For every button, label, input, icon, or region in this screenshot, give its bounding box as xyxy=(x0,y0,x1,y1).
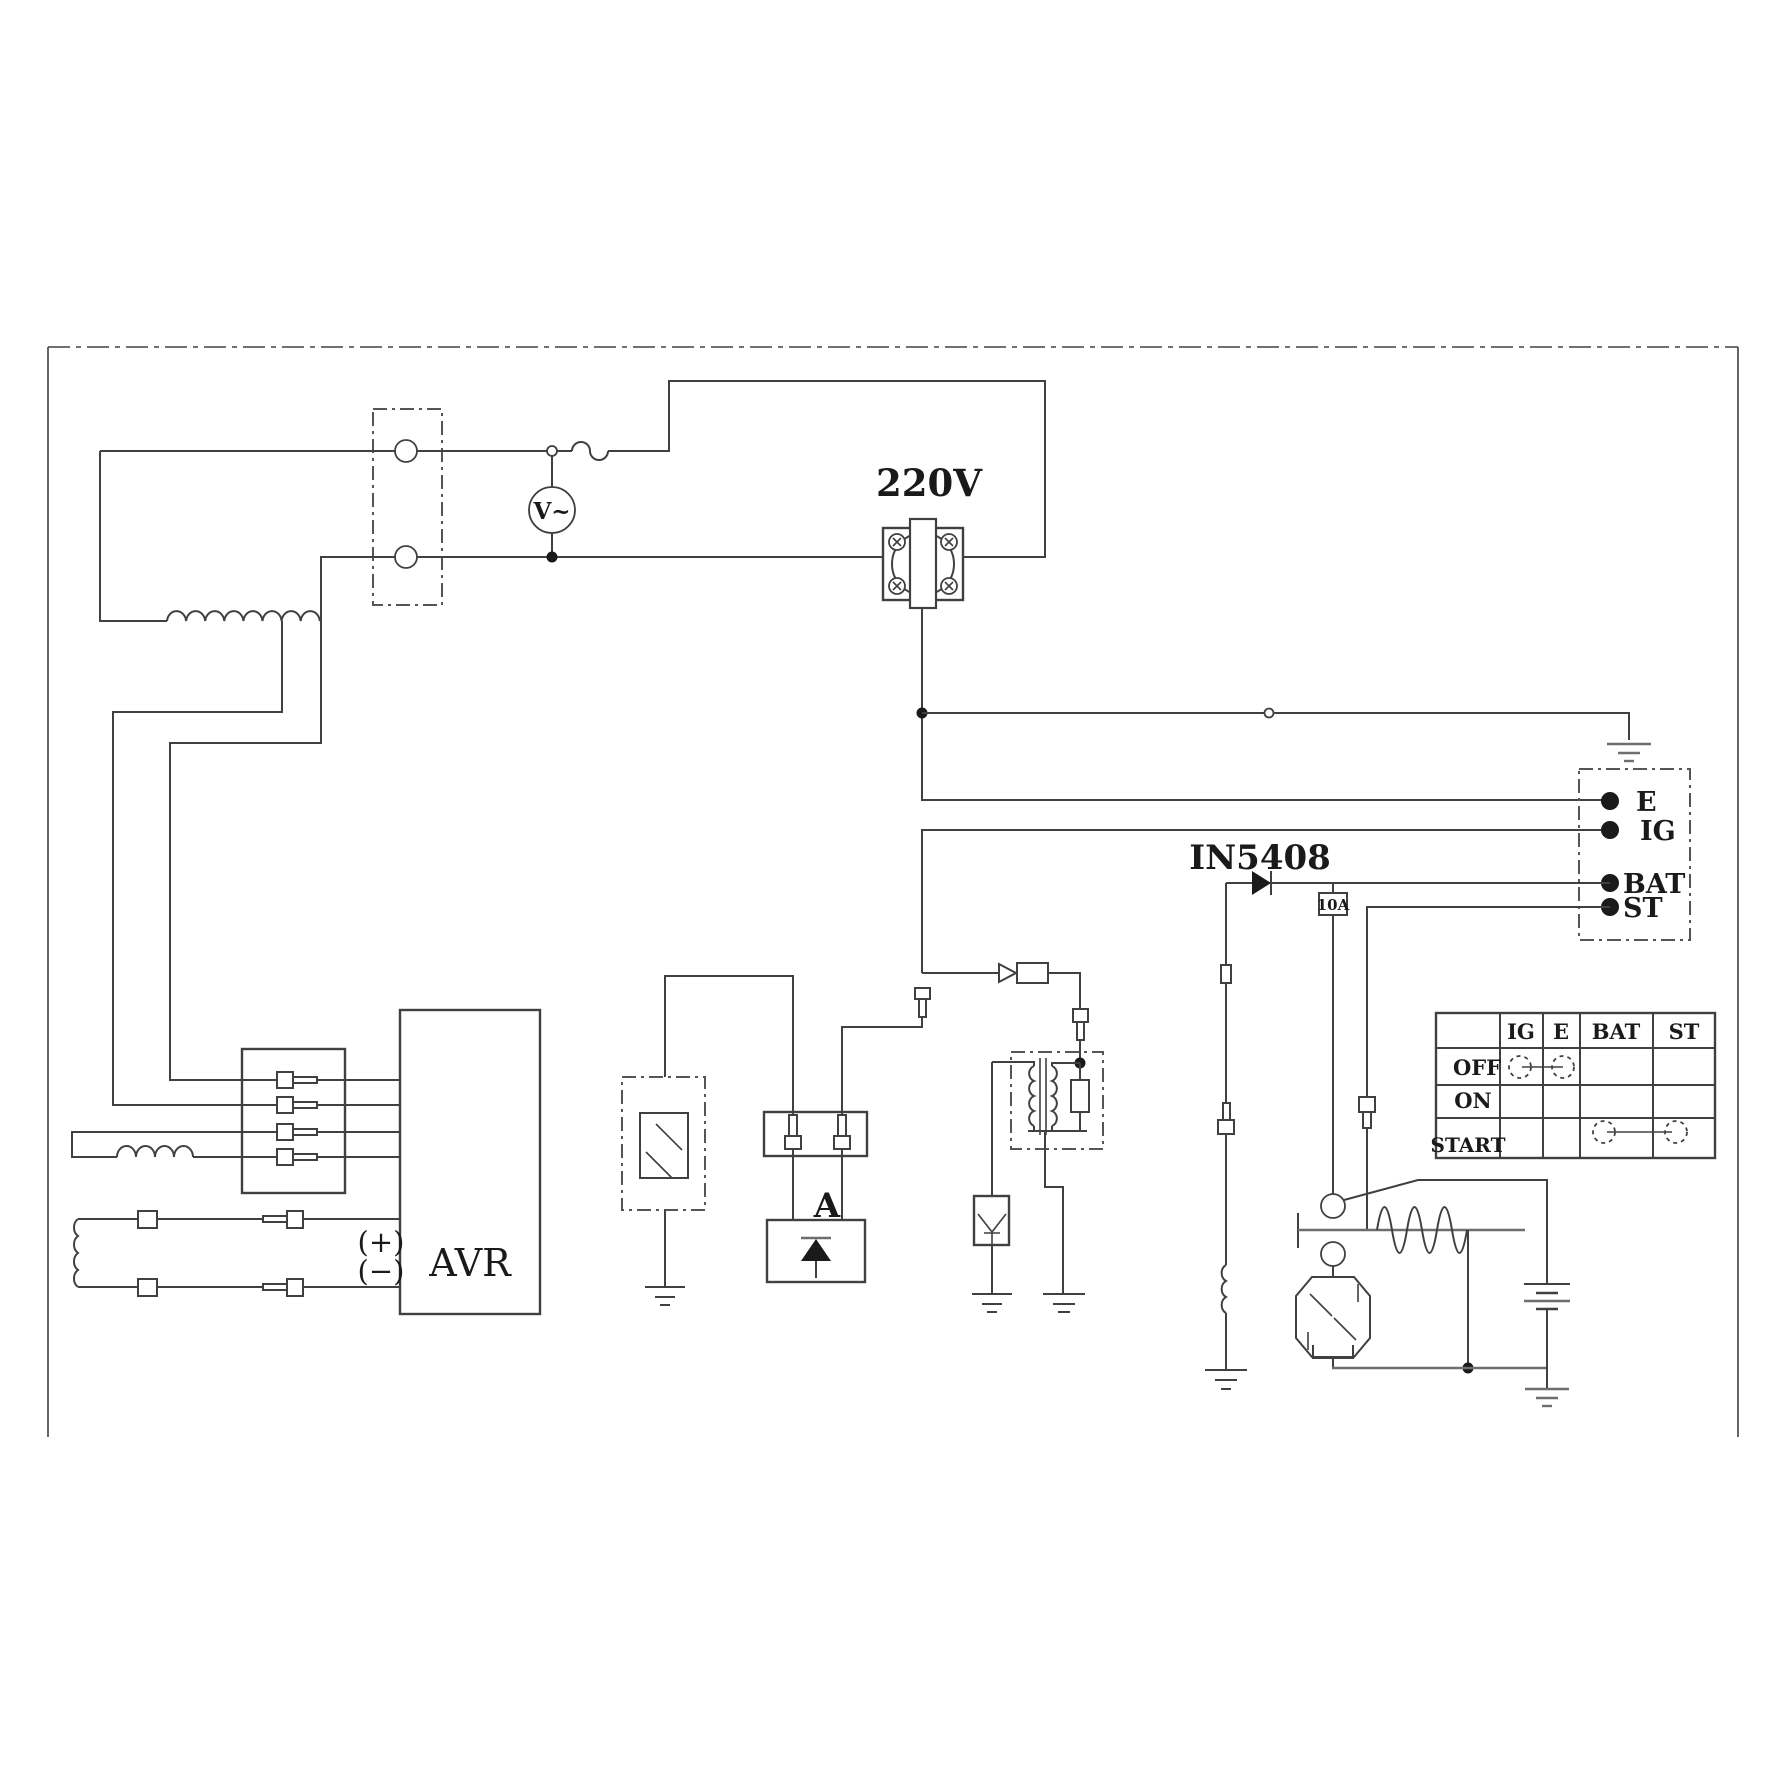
voltmeter: V~ xyxy=(529,455,575,563)
table-header-e: E xyxy=(1553,1019,1569,1044)
outlet-slot xyxy=(910,519,936,608)
terminal-e-label: E xyxy=(1636,787,1657,818)
ignition-switch-connector: E IG BAT ST xyxy=(1579,769,1690,940)
sense-coil xyxy=(117,1146,193,1157)
battery-charge-line: IN5408 10A xyxy=(1189,838,1610,1389)
inline-connector xyxy=(1221,965,1231,983)
field-winding xyxy=(74,1211,400,1296)
avr-label: AVR xyxy=(428,1241,512,1285)
table-contact-start xyxy=(1593,1121,1687,1143)
ground-symbol-spark-plug xyxy=(972,1294,1012,1312)
ground-symbol-charging-coil xyxy=(1205,1370,1247,1389)
avr-unit: AVR (+) (−) xyxy=(358,1010,540,1314)
battery xyxy=(1524,1284,1570,1406)
table-header-ig: IG xyxy=(1507,1019,1535,1044)
generator-terminal-box xyxy=(373,409,442,605)
avr-plug-2 xyxy=(277,1097,400,1113)
voltmeter-label: V~ xyxy=(532,498,570,525)
avr-connector-block xyxy=(72,1049,400,1193)
avr-plug-4 xyxy=(277,1149,400,1165)
table-header-bat: BAT xyxy=(1592,1019,1641,1044)
table-header-st: ST xyxy=(1669,1019,1700,1044)
fuse-label: 10A xyxy=(1317,896,1350,914)
avr-minus-label: (−) xyxy=(358,1254,405,1288)
charging-coil-branch xyxy=(1205,883,1247,1389)
table-contact-off xyxy=(1509,1056,1574,1078)
avr-plug-3 xyxy=(277,1124,400,1140)
resistor-block xyxy=(1017,963,1048,983)
diode-label: IN5408 xyxy=(1189,838,1331,878)
ground-symbol-coil xyxy=(1043,1294,1085,1312)
ground-symbol-top-right xyxy=(1607,744,1651,761)
diode-small xyxy=(999,964,1016,982)
ground-symbol-indicator xyxy=(645,1287,685,1305)
fuse-10a: 10A xyxy=(1317,883,1350,1194)
wiring-diagram-page: V~ 220V E IG xyxy=(0,0,1784,1784)
table-row-start: START xyxy=(1431,1133,1506,1157)
table-row-off: OFF xyxy=(1453,1055,1501,1080)
outlet-voltage-label: 220V xyxy=(876,461,983,505)
diagram-frame xyxy=(48,347,1738,1437)
table-row-on: ON xyxy=(1454,1088,1492,1113)
earth-and-key-lines xyxy=(917,607,1652,973)
avr-plug-1 xyxy=(277,1072,400,1088)
terminal-ig-label: IG xyxy=(1640,816,1676,847)
charging-coil xyxy=(1222,1265,1226,1313)
ground-symbol-battery xyxy=(1525,1389,1569,1406)
terminal-st-label: ST xyxy=(1623,893,1663,924)
switch-position-table: IG E BAT ST OFF ON START xyxy=(1431,1013,1715,1158)
spark-plug xyxy=(972,1062,1012,1312)
wiring-diagram: V~ 220V E IG xyxy=(0,0,1784,1784)
scr-unit-a: A xyxy=(767,1186,865,1282)
coil-resistor xyxy=(1071,1080,1089,1112)
circuit-breaker xyxy=(572,442,608,460)
ignition-coil xyxy=(992,1052,1103,1312)
starter-motor xyxy=(1296,1266,1547,1368)
outlet-220v: 220V xyxy=(876,461,983,608)
ignition-feed xyxy=(842,963,1088,1115)
main-stator-winding xyxy=(100,451,395,1105)
junction-terminal xyxy=(547,446,557,456)
